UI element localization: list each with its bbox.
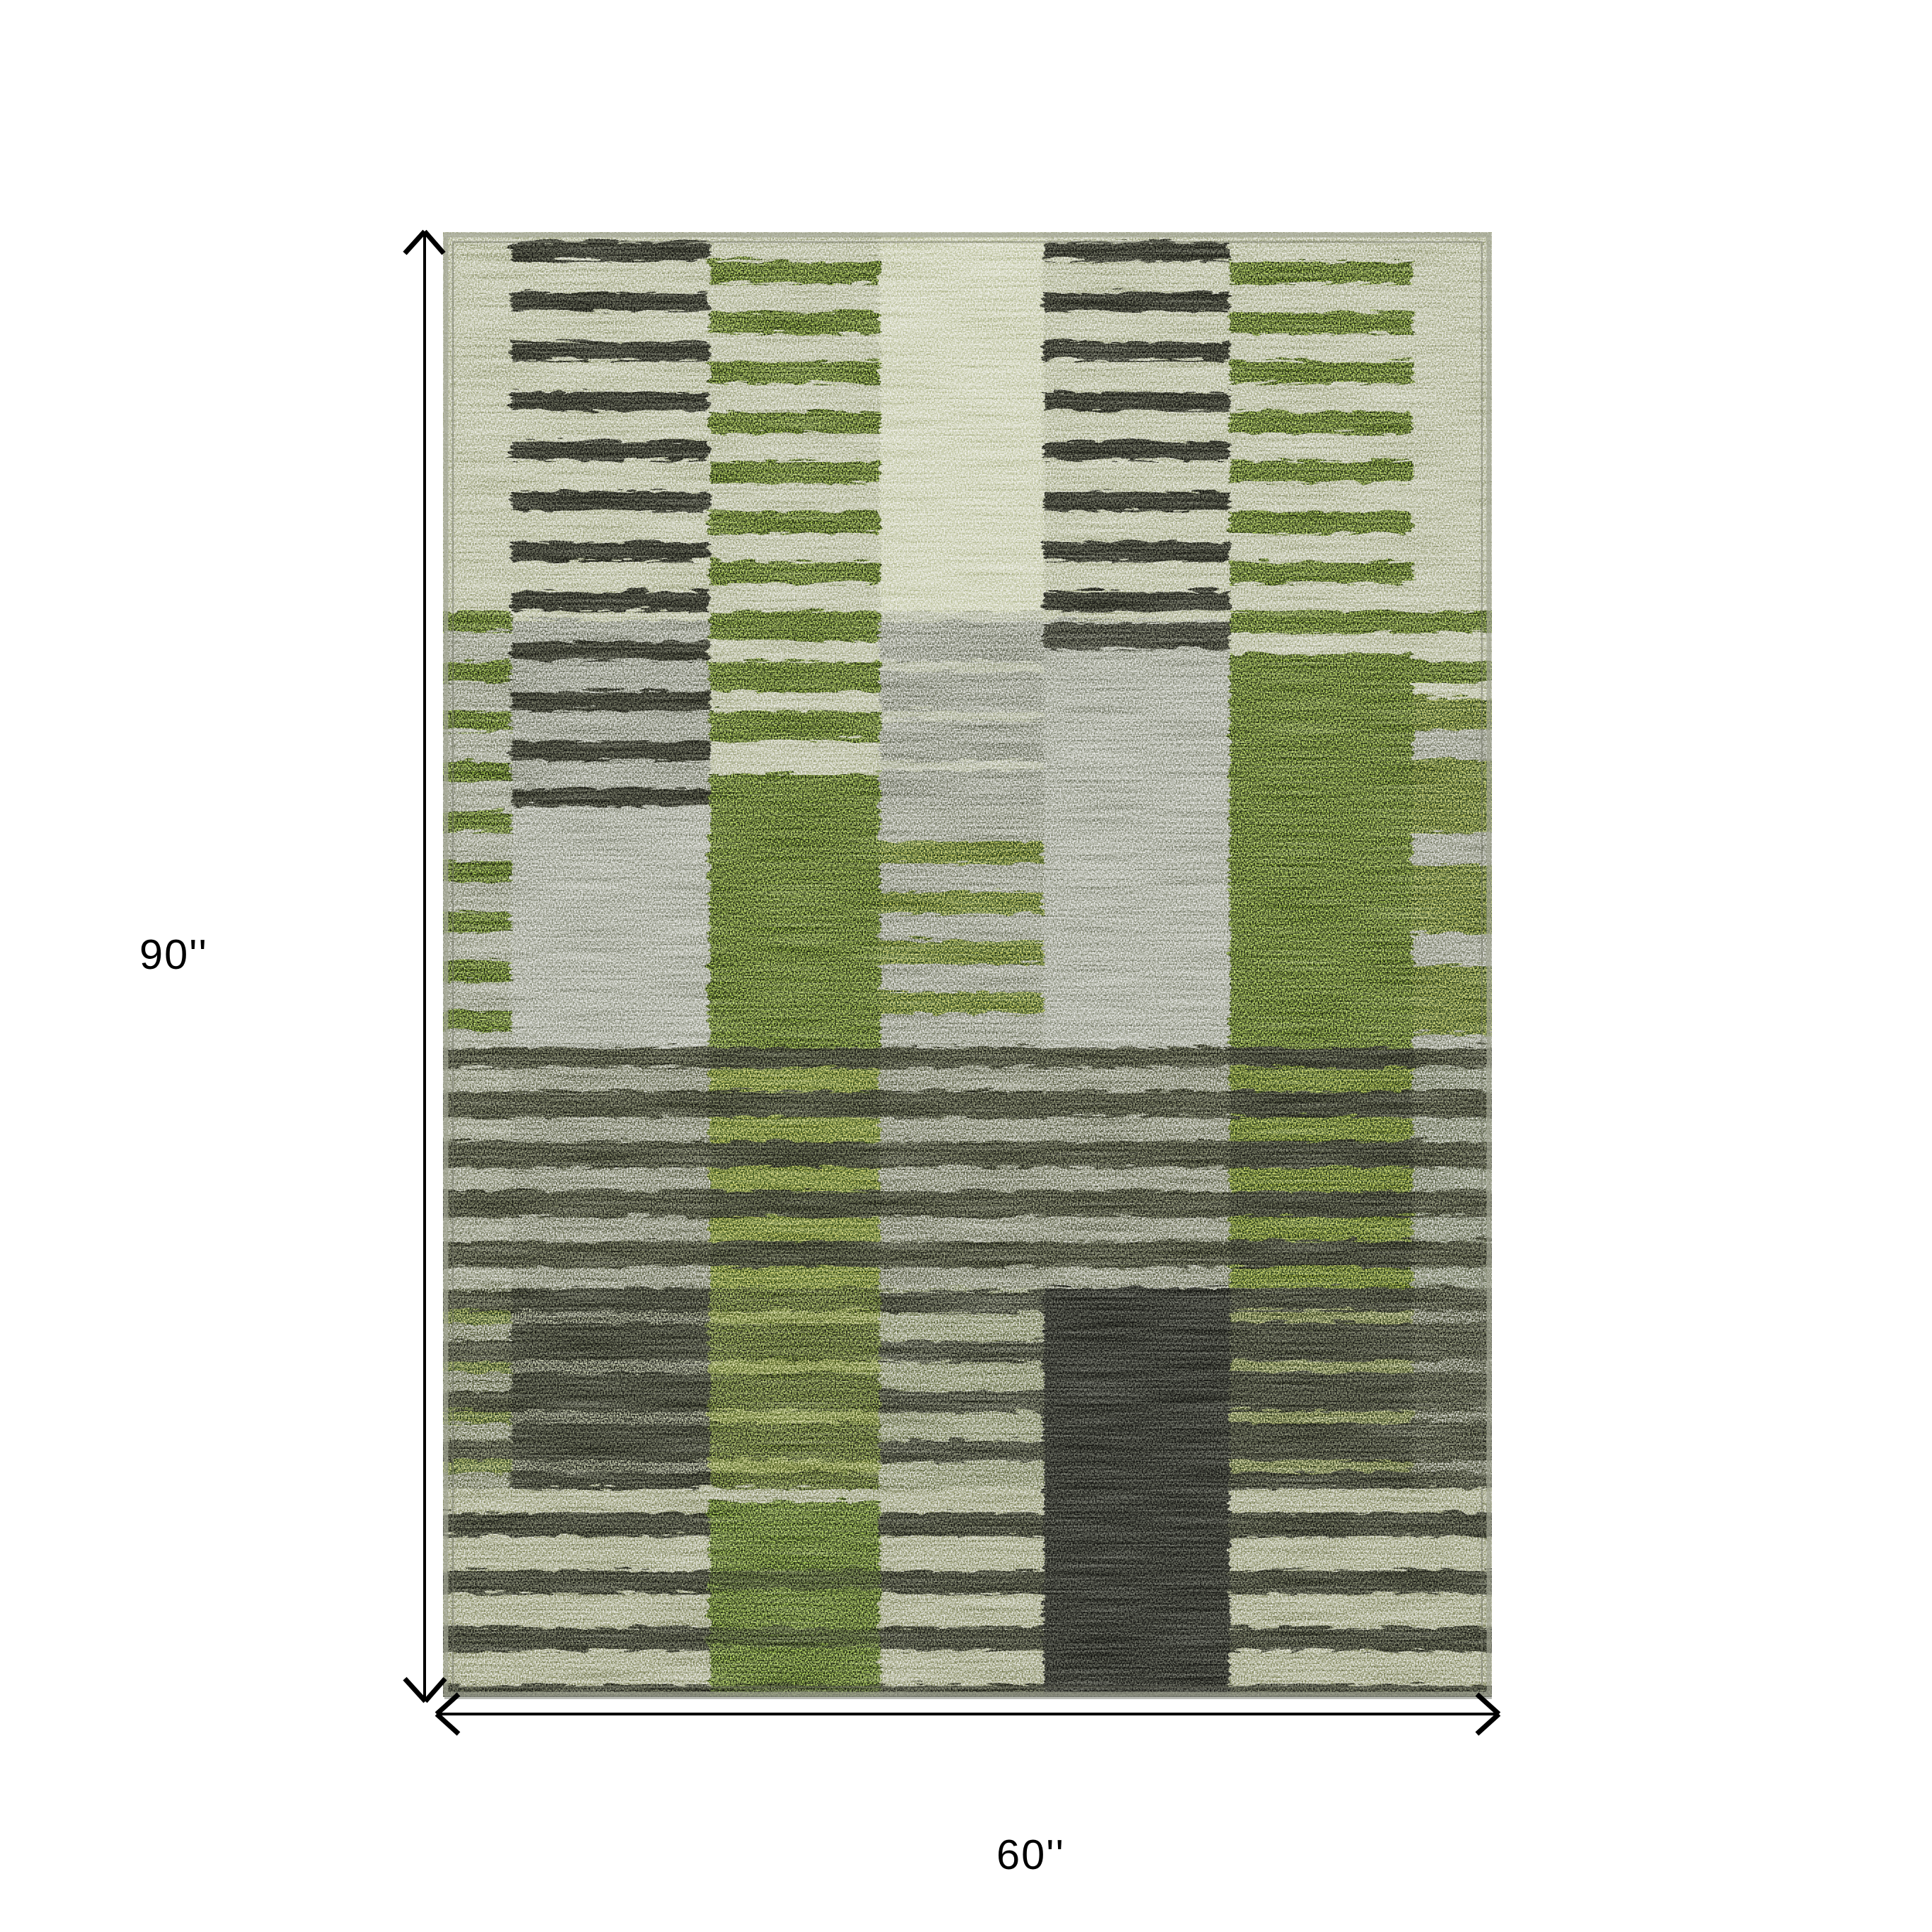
svg-text:60'': 60'' (996, 1831, 1065, 1878)
svg-text:90'': 90'' (139, 931, 208, 978)
